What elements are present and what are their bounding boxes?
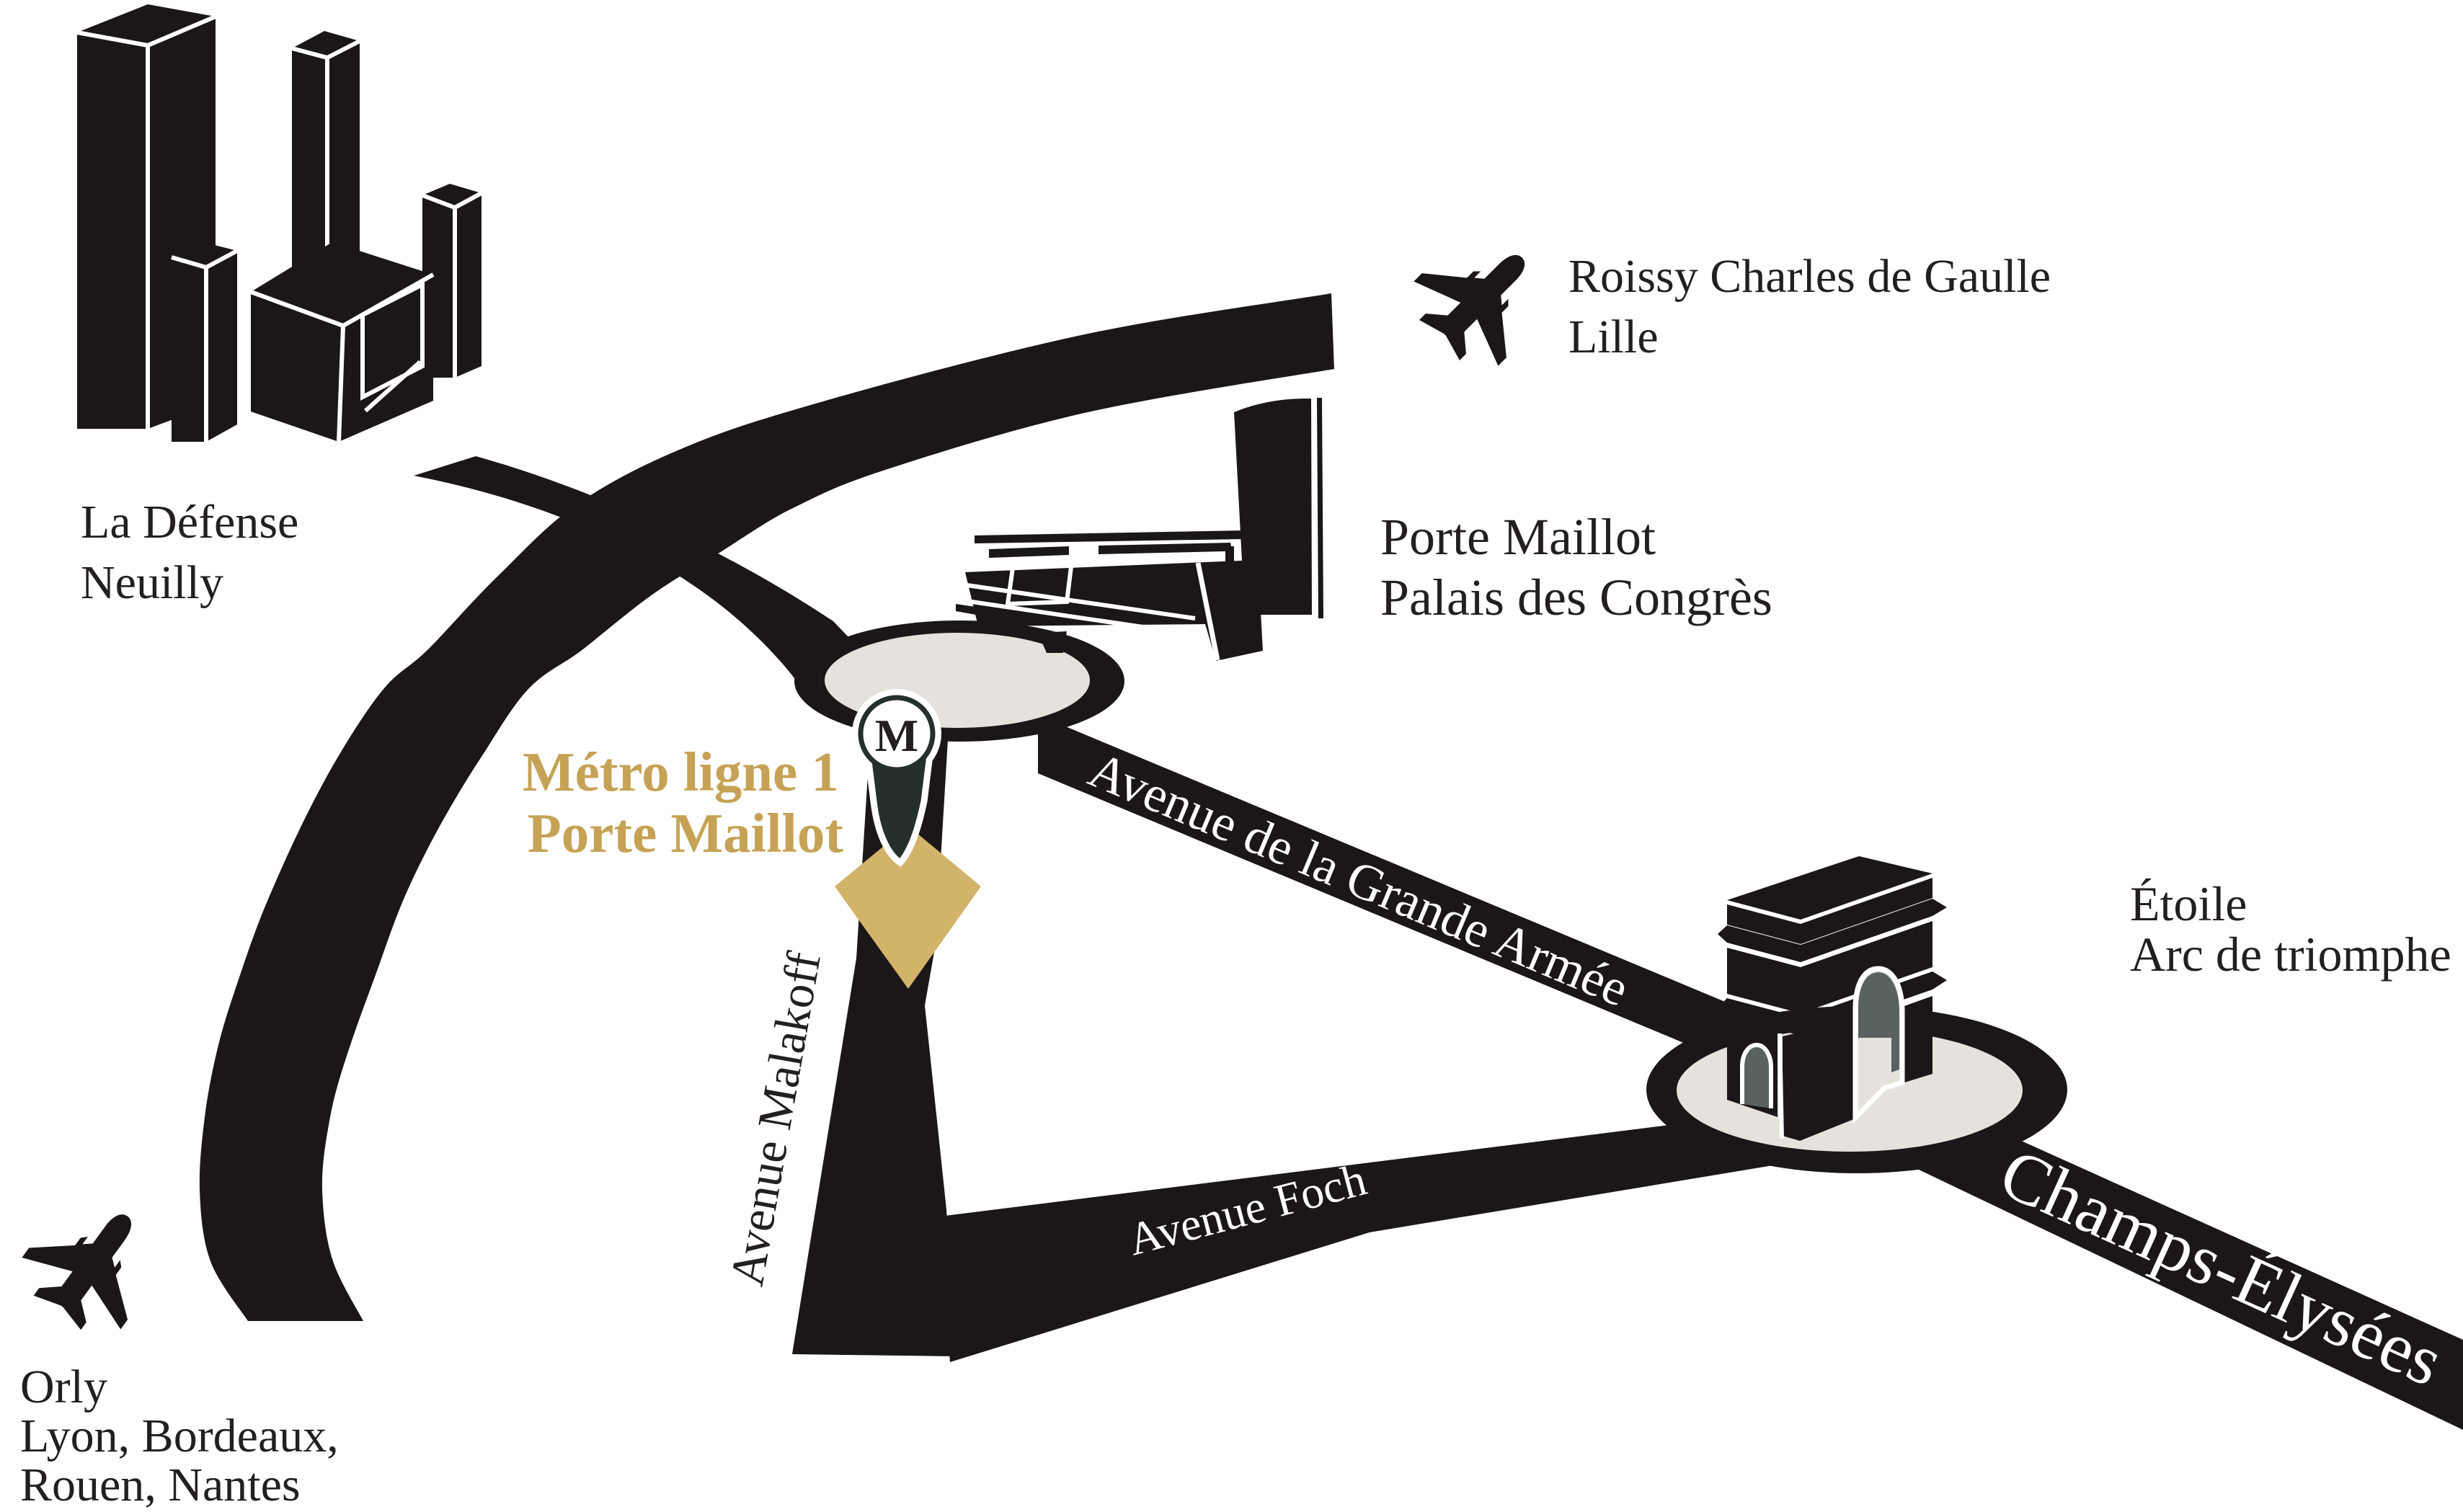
svg-text:Arc de triomphe: Arc de triomphe: [2130, 927, 2451, 982]
svg-text:La Défense: La Défense: [81, 496, 298, 548]
svg-text:Porte Maillot: Porte Maillot: [1380, 508, 1656, 566]
svg-text:Palais des Congrès: Palais des Congrès: [1380, 569, 1772, 626]
svg-text:Lyon, Bordeaux,: Lyon, Bordeaux,: [20, 1410, 339, 1462]
svg-text:Lille: Lille: [1568, 311, 1659, 363]
svg-text:Rouen, Nantes: Rouen, Nantes: [20, 1459, 301, 1511]
svg-text:Métro ligne 1: Métro ligne 1: [523, 741, 839, 803]
svg-text:M: M: [875, 710, 918, 761]
svg-text:Étoile: Étoile: [2130, 876, 2247, 931]
svg-text:Roissy Charles de Gaulle: Roissy Charles de Gaulle: [1568, 250, 2051, 303]
svg-text:Orly: Orly: [20, 1361, 107, 1413]
svg-text:Neuilly: Neuilly: [81, 556, 223, 609]
svg-text:Porte Maillot: Porte Maillot: [528, 802, 844, 864]
